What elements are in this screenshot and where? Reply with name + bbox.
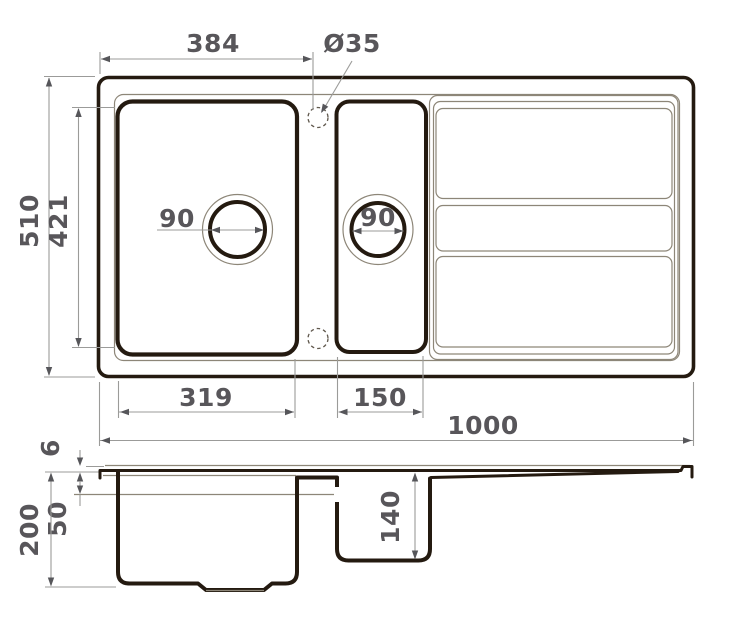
dim-rim-height: 6	[36, 439, 83, 486]
sink-inner-rim-outline	[115, 95, 680, 361]
dim-total-width-label: 1000	[447, 411, 519, 440]
dim-rim-height-label: 6	[36, 439, 65, 457]
dim-main-bowl-width: 319	[119, 359, 296, 418]
dim-half-bowl-depth: 140	[376, 473, 418, 560]
drainboard-outline	[430, 96, 679, 360]
dim-hole-diameter-label: Ø35	[323, 29, 381, 58]
dim-half-bowl-width: 150	[338, 356, 424, 418]
section-view: 6 50 200 140	[15, 439, 692, 590]
dim-bowl-inner-depth-label: 421	[44, 194, 73, 248]
dim-half-bowl-width-label: 150	[353, 383, 407, 412]
dim-ledge-depth-label: 50	[43, 501, 72, 537]
tap-hole-top	[308, 108, 328, 128]
drainboard-inner-outline	[434, 102, 675, 355]
sink-dimension-drawing: 384 Ø35 510 421	[0, 0, 744, 640]
drainboard-panel-middle	[436, 206, 672, 252]
dim-total-height-label: 200	[15, 503, 44, 557]
dim-main-bowl-width-label: 319	[179, 383, 233, 412]
main-bowl-outline	[118, 102, 298, 355]
section-overflow-gap	[334, 487, 340, 502]
dim-outer-depth-label: 510	[15, 194, 44, 248]
drainboard-panel-top	[436, 109, 672, 199]
section-drainboard-surface	[431, 472, 678, 478]
dim-half-drain-label: 90	[360, 203, 396, 232]
dim-hole-offset-label: 384	[186, 29, 240, 58]
dim-main-drain-label: 90	[159, 204, 195, 233]
section-main-bowl	[118, 471, 297, 590]
dim-bowl-inner-depth: 421	[44, 108, 115, 348]
dim-half-drain: 90	[353, 203, 404, 234]
dim-half-bowl-depth-label: 140	[376, 490, 405, 544]
top-view: 384 Ø35 510 421	[15, 29, 694, 446]
drainboard-panel-bottom	[436, 257, 672, 348]
drawing-canvas: 384 Ø35 510 421	[0, 0, 744, 640]
tap-hole-bottom	[308, 329, 328, 349]
dim-ledge-depth: 50	[43, 486, 83, 537]
dim-hole-offset: 384	[100, 29, 313, 110]
